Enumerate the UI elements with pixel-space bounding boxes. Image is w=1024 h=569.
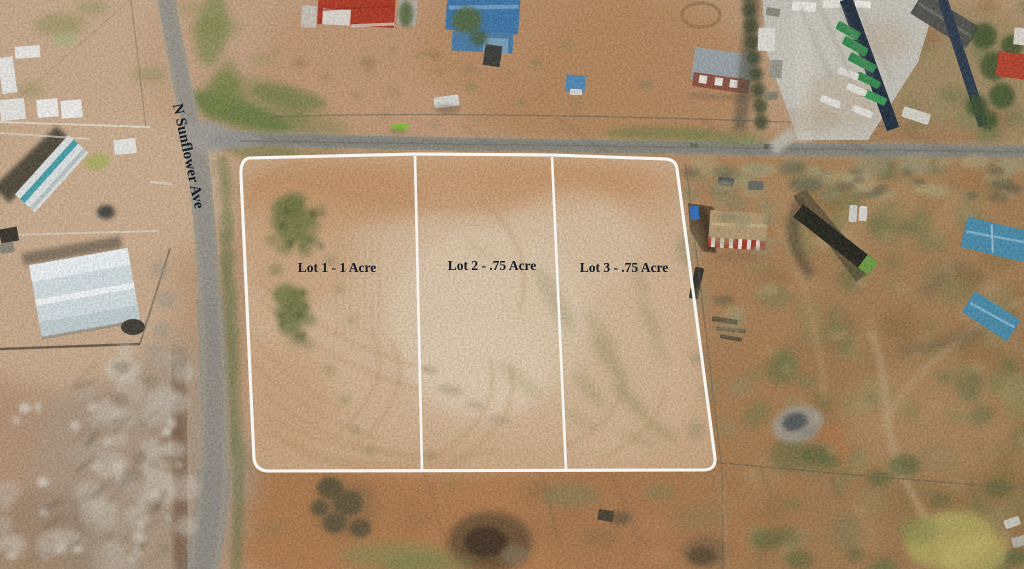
svg-text:Lot 2 - .75 Acre: Lot 2 - .75 Acre	[448, 258, 537, 273]
svg-text:Lot 1 - 1 Acre: Lot 1 - 1 Acre	[298, 260, 376, 275]
svg-text:Lot 3 - .75 Acre: Lot 3 - .75 Acre	[580, 260, 669, 275]
